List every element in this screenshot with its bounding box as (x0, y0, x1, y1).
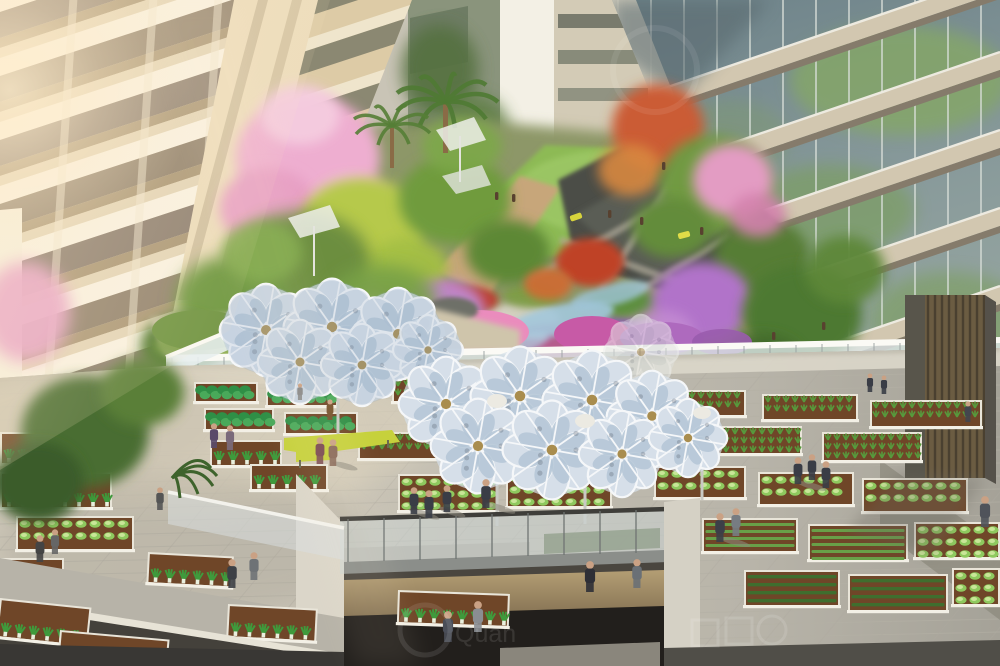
svg-text:Quan: Quan (455, 620, 516, 648)
